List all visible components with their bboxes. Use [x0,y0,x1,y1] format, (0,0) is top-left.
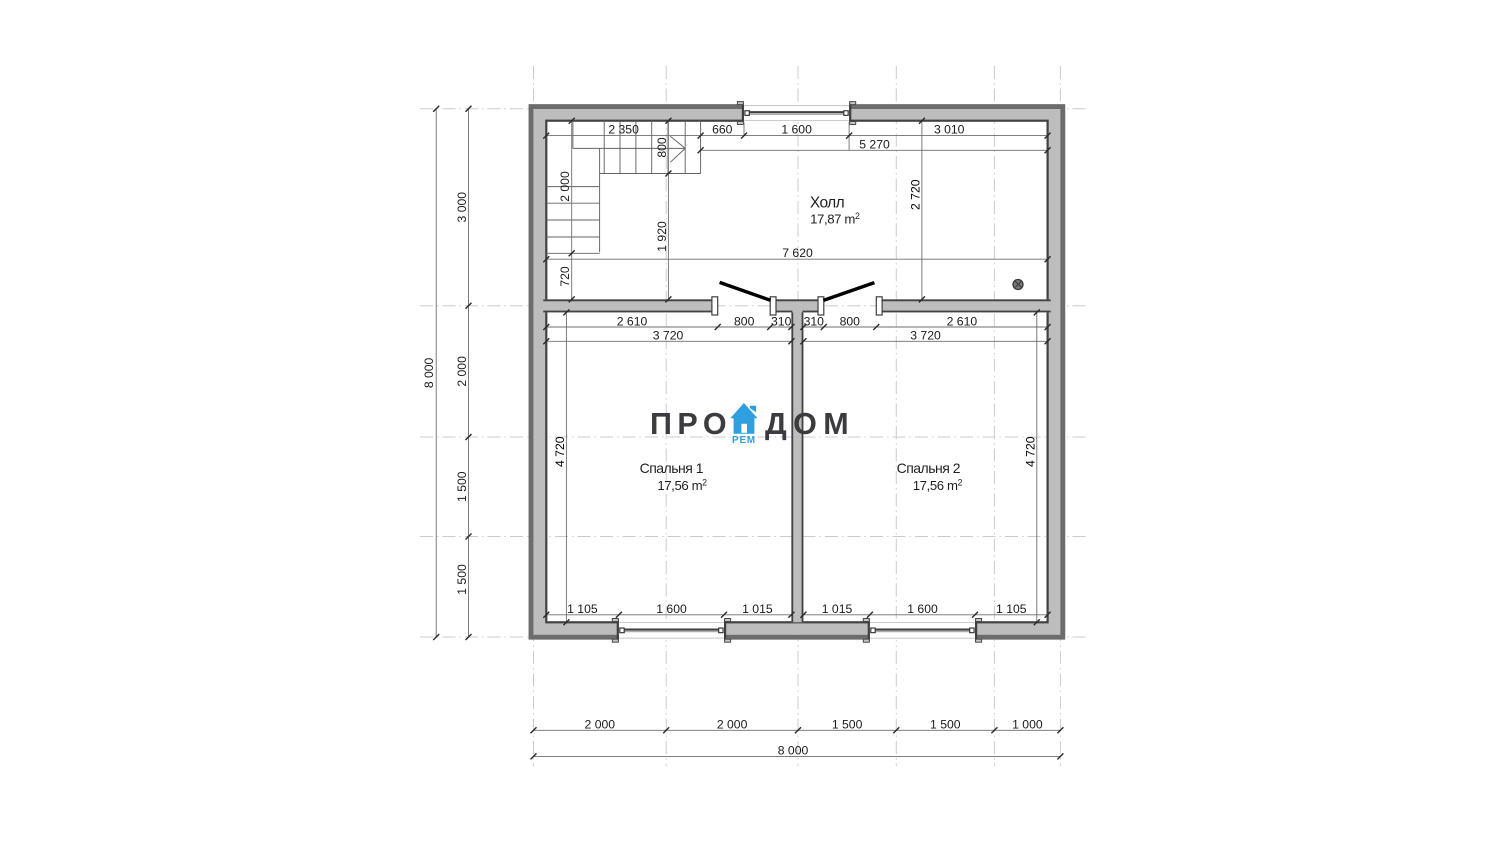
svg-text:4 720: 4 720 [553,436,567,467]
svg-text:1 015: 1 015 [822,602,853,616]
svg-text:Спальня 1: Спальня 1 [640,460,704,476]
svg-text:Холл: Холл [810,195,844,212]
svg-text:2 000: 2 000 [717,718,748,732]
svg-text:2 000: 2 000 [585,718,616,732]
svg-text:1 500: 1 500 [930,718,961,732]
svg-text:1 105: 1 105 [996,602,1027,616]
svg-text:17,56 m2: 17,56 m2 [657,477,707,493]
svg-text:1 600: 1 600 [656,602,687,616]
svg-text:720: 720 [558,266,572,287]
svg-text:660: 660 [712,123,733,137]
svg-text:1 500: 1 500 [832,718,863,732]
svg-text:5 270: 5 270 [859,137,890,151]
svg-text:4 720: 4 720 [1023,436,1037,467]
svg-text:800: 800 [655,137,669,158]
svg-text:800: 800 [734,314,755,328]
svg-text:2 000: 2 000 [558,171,572,202]
svg-text:310: 310 [771,314,792,328]
svg-text:РЕМ: РЕМ [732,435,756,446]
svg-text:17,56 m2: 17,56 m2 [913,477,963,493]
svg-text:1 015: 1 015 [742,602,773,616]
svg-text:1 500: 1 500 [455,564,469,595]
svg-text:ПРО: ПРО [650,407,732,441]
svg-text:3 720: 3 720 [910,329,941,343]
svg-text:3 010: 3 010 [934,123,965,137]
svg-text:Спальня 2: Спальня 2 [897,460,961,476]
svg-text:1 600: 1 600 [907,602,938,616]
svg-text:1 500: 1 500 [455,471,469,502]
svg-text:800: 800 [840,314,861,328]
svg-text:3 000: 3 000 [455,192,469,223]
svg-text:7 620: 7 620 [782,246,813,260]
svg-text:8 000: 8 000 [422,357,436,388]
svg-text:2 720: 2 720 [909,179,923,210]
svg-text:1 105: 1 105 [567,602,598,616]
svg-text:ДОМ: ДОМ [765,407,855,441]
svg-text:1 000: 1 000 [1012,718,1043,732]
svg-text:2 000: 2 000 [455,356,469,387]
svg-text:8 000: 8 000 [778,744,809,758]
svg-text:2 610: 2 610 [617,314,648,328]
svg-text:2 610: 2 610 [947,314,978,328]
svg-text:1 920: 1 920 [655,221,669,252]
svg-text:3 720: 3 720 [653,329,684,343]
svg-text:1 600: 1 600 [781,123,812,137]
svg-text:310: 310 [804,314,825,328]
svg-text:2 350: 2 350 [608,123,639,137]
svg-text:17,87 m2: 17,87 m2 [810,211,860,227]
